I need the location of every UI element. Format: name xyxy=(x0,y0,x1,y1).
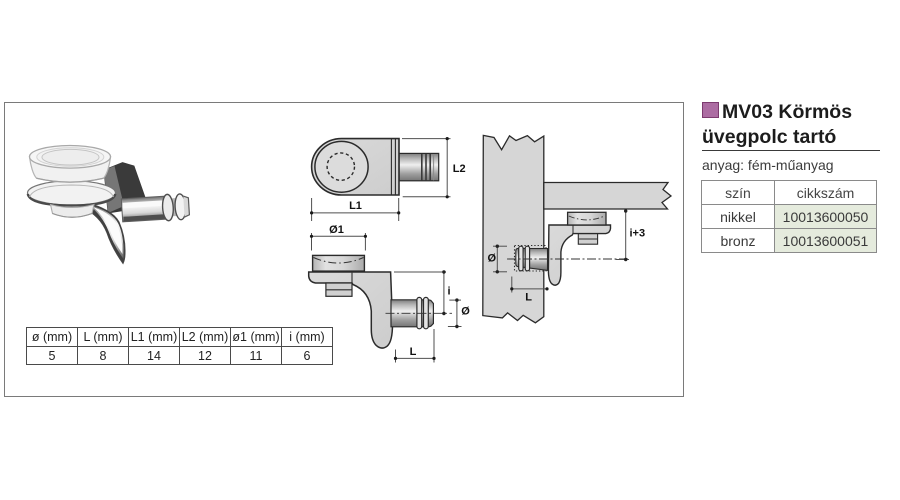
svg-text:L2: L2 xyxy=(453,163,466,175)
svg-text:i+3: i+3 xyxy=(630,227,646,239)
svg-text:L: L xyxy=(525,292,532,304)
svg-text:Ø1: Ø1 xyxy=(329,224,344,236)
svg-text:i: i xyxy=(448,286,451,298)
svg-text:Ø: Ø xyxy=(488,253,497,265)
svg-text:L: L xyxy=(410,346,417,358)
svg-text:Ø: Ø xyxy=(461,306,470,318)
svg-text:L1: L1 xyxy=(349,200,362,212)
